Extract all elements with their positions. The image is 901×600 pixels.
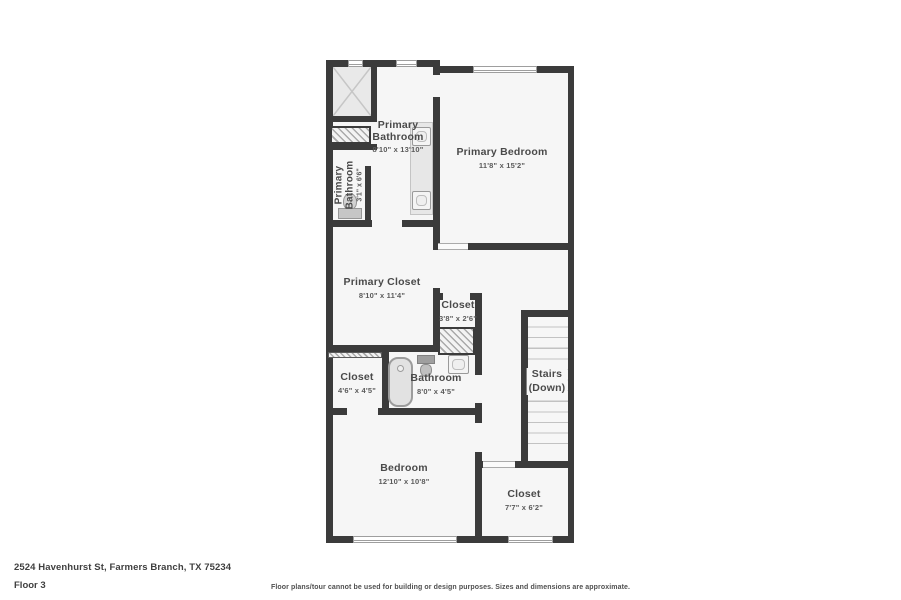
window	[508, 536, 553, 543]
room-name: Bathroom	[410, 373, 461, 385]
room-label-closet-bedroom: Closet 4'6" x 4'5"	[338, 372, 376, 395]
room-label-primary-bathroom-wc: Primary Bathroom 3'1" x 6'6"	[334, 154, 365, 216]
room-label-closet-back: Closet 7'7" x 6'2"	[505, 489, 543, 512]
room-dims: 7'7" x 6'2"	[505, 503, 543, 512]
room-name: Closet	[439, 300, 477, 312]
hatched-area	[438, 327, 475, 355]
wall	[326, 60, 438, 67]
shower	[333, 67, 371, 116]
room-dims: 8'0" x 4'5"	[410, 387, 461, 396]
room-name: Primary Bathroom	[358, 120, 438, 143]
room-name: Primary Bathroom	[334, 154, 356, 216]
wall	[521, 310, 574, 317]
room-name: Primary Closet	[344, 277, 421, 289]
bathtub-drain	[397, 365, 404, 372]
room-name: Primary Bedroom	[456, 147, 547, 159]
window	[348, 60, 363, 67]
room-label-stairs: Stairs (Down)	[527, 368, 568, 395]
room-label-closet-hall: Closet 3'8" x 2'6"	[439, 300, 477, 323]
room-label-primary-closet: Primary Closet 8'10" x 11'4"	[344, 277, 421, 300]
floor-plan: Primary Bathroom 8'10" x 13'10" Primary …	[326, 60, 574, 543]
room-name: Closet	[505, 489, 543, 501]
room-dims: 8'10" x 11'4"	[344, 291, 421, 300]
wall	[365, 166, 371, 227]
window	[353, 536, 457, 543]
sink-basin	[416, 195, 427, 206]
room-dims: 3'8" x 2'6"	[439, 314, 477, 323]
wall	[326, 220, 372, 227]
window	[396, 60, 417, 67]
wall	[326, 345, 437, 352]
wall	[402, 220, 440, 227]
room-name: Stairs	[527, 368, 568, 382]
toilet-tank	[417, 355, 435, 364]
doorway-opening	[483, 461, 515, 468]
room-label-bathroom: Bathroom 8'0" x 4'5"	[410, 373, 461, 396]
shower-x-icon	[333, 67, 371, 116]
room-sub: (Down)	[527, 382, 568, 396]
wall	[568, 66, 574, 543]
wall	[433, 60, 440, 75]
room-label-primary-bathroom: Primary Bathroom 8'10" x 13'10"	[358, 120, 438, 154]
wall	[326, 408, 347, 415]
disclaimer-text: Floor plans/tour cannot be used for buil…	[0, 584, 901, 591]
wall	[468, 243, 574, 250]
hatched-strip	[328, 352, 382, 358]
room-label-primary-bedroom: Primary Bedroom 11'8" x 15'2"	[456, 147, 547, 170]
room-dims: 4'6" x 4'5"	[338, 386, 376, 395]
room-dims: 11'8" x 15'2"	[456, 161, 547, 170]
room-name: Bedroom	[378, 463, 429, 475]
room-name: Closet	[338, 372, 376, 384]
room-dims: 8'10" x 13'10"	[358, 145, 438, 154]
room-label-bedroom: Bedroom 12'10" x 10'8"	[378, 463, 429, 486]
wall	[515, 461, 574, 468]
doorway-opening	[438, 243, 468, 250]
floor-plan-page: { "rooms": { "primary_bathroom": {"name"…	[0, 0, 901, 600]
sink	[412, 191, 431, 210]
wall	[475, 461, 483, 468]
sink-basin	[452, 359, 465, 370]
bathtub	[388, 357, 413, 407]
window	[473, 66, 537, 73]
wall	[378, 408, 482, 415]
room-dims: 3'1" x 6'6"	[357, 154, 365, 216]
room-dims: 12'10" x 10'8"	[378, 477, 429, 486]
address-text: 2524 Havenhurst St, Farmers Branch, TX 7…	[14, 562, 231, 573]
wall	[371, 60, 377, 122]
